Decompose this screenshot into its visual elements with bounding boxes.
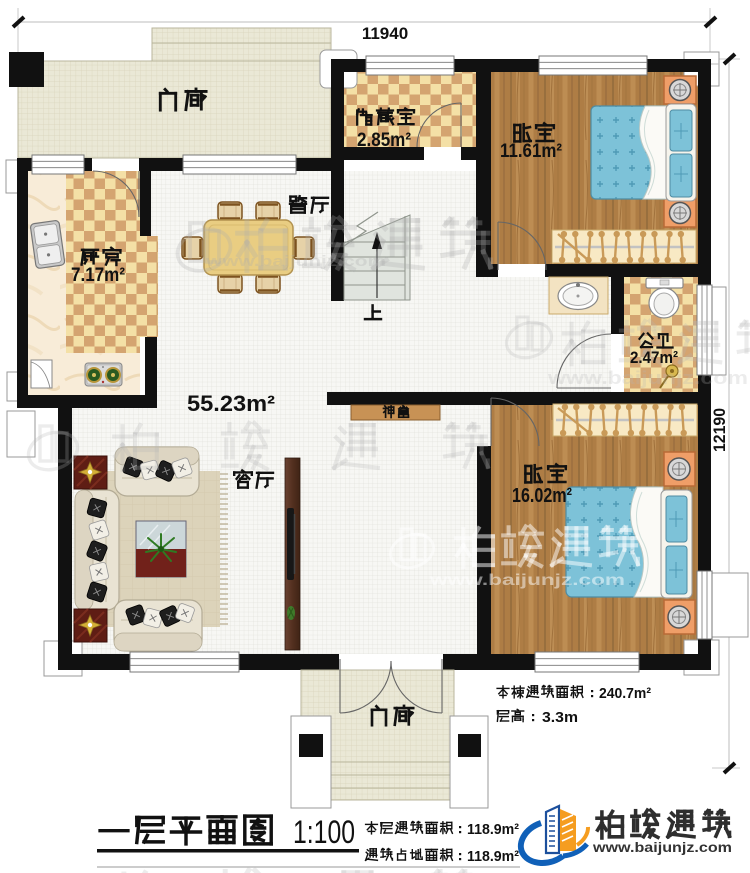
svg-text:7.17m²: 7.17m² (71, 265, 125, 286)
svg-text:3.3m: 3.3m (542, 709, 578, 726)
svg-text:55.23m²: 55.23m² (187, 391, 275, 416)
svg-text:2.85m²: 2.85m² (357, 130, 411, 151)
svg-text:16.02m²: 16.02m² (512, 485, 572, 507)
svg-text:11.61m²: 11.61m² (500, 141, 562, 162)
svg-text:240.7m²: 240.7m² (599, 685, 651, 702)
svg-text:www.baijunjz.com: www.baijunjz.com (547, 368, 748, 388)
svg-text:www.baijunjz.com: www.baijunjz.com (592, 839, 732, 855)
svg-text:1:100: 1:100 (293, 814, 355, 850)
svg-text:2.47m²: 2.47m² (630, 348, 678, 367)
svg-text:www.baijunjz.com: www.baijunjz.com (429, 572, 625, 589)
svg-text:118.9m²: 118.9m² (467, 848, 519, 865)
svg-text:www.baijunjz.com: www.baijunjz.com (205, 253, 386, 270)
svg-text:12190: 12190 (710, 408, 729, 452)
svg-text:11940: 11940 (362, 24, 408, 43)
svg-text:118.9m²: 118.9m² (467, 821, 519, 838)
